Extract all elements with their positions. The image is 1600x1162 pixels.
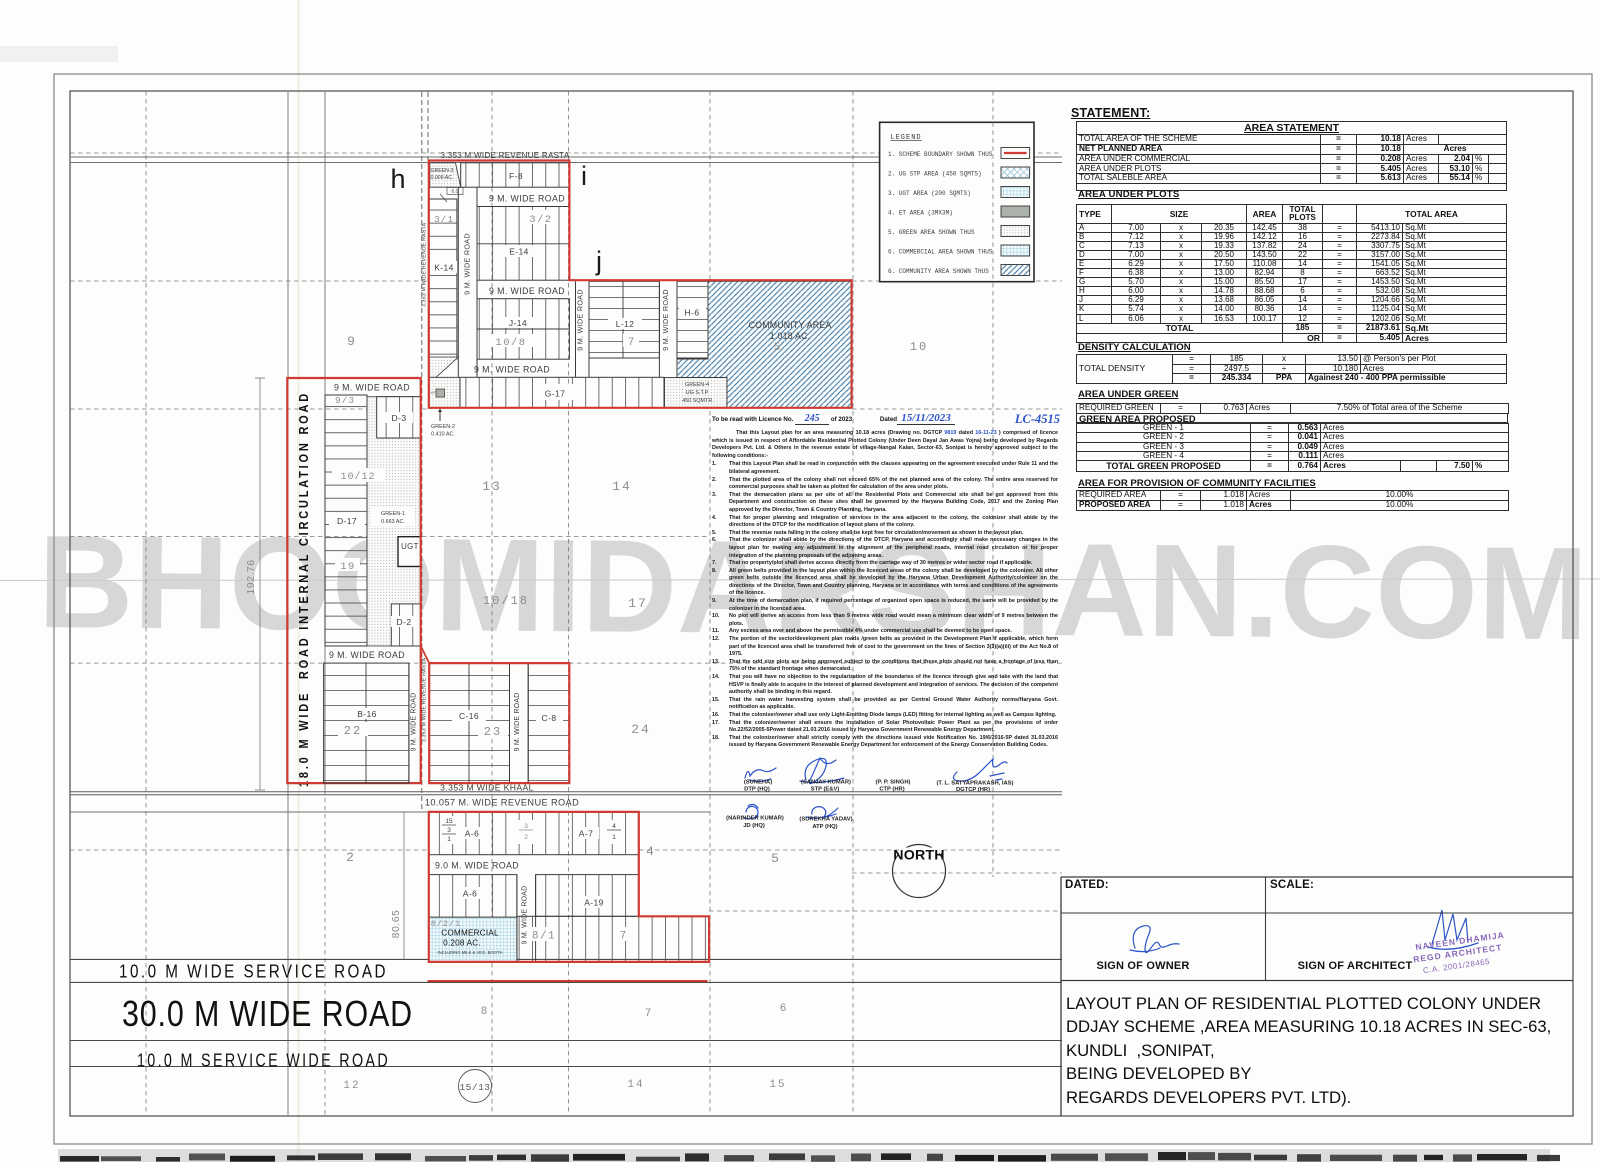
svg-text:6. COMMUNITY AREA SHOWN THUS: 6. COMMUNITY AREA SHOWN THUS	[888, 268, 989, 275]
svg-text:9 M. WIDE ROAD: 9 M. WIDE ROAD	[334, 383, 410, 393]
svg-text:450 SQMTR.: 450 SQMTR.	[682, 398, 713, 404]
svg-text:LEGEND: LEGEND	[890, 134, 921, 142]
svg-text:5: 5	[774, 342, 781, 354]
svg-text:C-16: C-16	[459, 711, 479, 721]
svg-text:C-8: C-8	[542, 713, 557, 723]
svg-text:1.018 AC.: 1.018 AC.	[770, 331, 810, 341]
svg-text:10.0 M WIDE SERVICE ROAD: 10.0 M WIDE SERVICE ROAD	[119, 961, 388, 982]
svg-text:D-2: D-2	[397, 617, 412, 627]
svg-text:CTP (HR): CTP (HR)	[879, 786, 904, 792]
svg-text:K-14: K-14	[434, 263, 454, 273]
svg-text:2: 2	[524, 834, 528, 841]
svg-text:3.353 M WIDE REVENUE RASTA: 3.353 M WIDE REVENUE RASTA	[440, 151, 569, 160]
svg-text:9 M. WIDE ROAD: 9 M. WIDE ROAD	[329, 650, 405, 660]
svg-text:19: 19	[340, 561, 356, 573]
svg-text:15: 15	[445, 818, 453, 825]
svg-text:(SUREKHA YADAV): (SUREKHA YADAV)	[799, 817, 852, 823]
svg-text:1. SCHEME BOUNDARY SHOWN THUS: 1. SCHEME BOUNDARY SHOWN THUS	[888, 151, 993, 158]
svg-text:3.353 M WIDE REVENUE RASTA: 3.353 M WIDE REVENUE RASTA	[421, 223, 427, 308]
svg-text:A-6: A-6	[463, 889, 477, 899]
svg-text:9/3: 9/3	[335, 395, 355, 406]
svg-text:9 M. WIDE ROAD: 9 M. WIDE ROAD	[489, 286, 565, 296]
svg-text:3: 3	[524, 823, 528, 830]
svg-text:17: 17	[628, 596, 648, 611]
svg-text:9 M. WIDE ROAD: 9 M. WIDE ROAD	[411, 693, 418, 752]
svg-text:9 M. WIDE ROAD: 9 M. WIDE ROAD	[661, 289, 670, 351]
svg-text:7: 7	[628, 337, 635, 349]
svg-text:9.0 M. WIDE ROAD: 9.0 M. WIDE ROAD	[435, 861, 519, 871]
svg-text:H-6: H-6	[685, 308, 700, 318]
svg-text:GREEN-3: GREEN-3	[430, 168, 453, 174]
svg-text:9 M. WIDE ROAD: 9 M. WIDE ROAD	[474, 365, 550, 375]
svg-text:7: 7	[645, 1008, 654, 1020]
svg-text:14: 14	[627, 1079, 644, 1091]
svg-text:9 M. WIDE ROAD: 9 M. WIDE ROAD	[463, 233, 472, 295]
svg-text:6: 6	[780, 1003, 789, 1015]
svg-text:A-6: A-6	[465, 829, 479, 839]
svg-text:J-14: J-14	[509, 318, 527, 328]
svg-text:A-7: A-7	[579, 829, 593, 839]
svg-text:A-19: A-19	[584, 898, 604, 908]
svg-text:ET: ET	[431, 391, 437, 395]
svg-text:G-17: G-17	[545, 389, 566, 399]
svg-text:GREEN-1: GREEN-1	[381, 511, 405, 517]
svg-text:8/1: 8/1	[532, 931, 556, 943]
svg-text:2: 2	[346, 850, 356, 865]
svg-text:18.0 M WIDE ROAD INTERNAL CIR: 18.0 M WIDE ROAD INTERNAL CIRCULATION RO…	[297, 391, 311, 787]
svg-text:i: i	[581, 161, 587, 191]
svg-text:30.0 M WIDE ROAD: 30.0 M WIDE ROAD	[122, 993, 413, 1034]
svg-text:10/18: 10/18	[483, 594, 529, 608]
svg-text:(SANJAY KUMAR): (SANJAY KUMAR)	[801, 780, 851, 786]
svg-text:6. COMMERCIAL AREA SHOWN THUS: 6. COMMERCIAL AREA SHOWN THUS	[888, 249, 993, 256]
svg-text:80.65: 80.65	[390, 910, 402, 939]
svg-text:3.353 M WIDE KHAAL: 3.353 M WIDE KHAAL	[440, 783, 534, 793]
svg-text:STP (E&V): STP (E&V)	[811, 786, 840, 792]
svg-text:0.208 AC.: 0.208 AC.	[443, 939, 481, 948]
svg-text:3.353 M WIDE REVENUE RASTA: 3.353 M WIDE REVENUE RASTA	[421, 658, 427, 743]
svg-text:13: 13	[482, 479, 502, 494]
svg-text:1: 1	[447, 836, 451, 843]
svg-text:9 M. WIDE ROAD: 9 M. WIDE ROAD	[489, 194, 565, 204]
svg-text:COMMUNITY AREA: COMMUNITY AREA	[749, 320, 832, 330]
svg-text:COMMERCIAL: COMMERCIAL	[441, 929, 499, 938]
svg-text:8/2/1: 8/2/1	[431, 919, 462, 929]
svg-text:3: 3	[447, 827, 451, 834]
svg-text:GREEN-2: GREEN-2	[431, 424, 455, 430]
svg-text:DGTCP (HR): DGTCP (HR)	[956, 787, 990, 793]
svg-text:ATP (HQ): ATP (HQ)	[812, 824, 837, 830]
svg-text:15/13: 15/13	[459, 1082, 490, 1093]
svg-text:GREEN-4: GREEN-4	[685, 382, 709, 388]
svg-text:DTP (HQ): DTP (HQ)	[744, 786, 770, 792]
svg-text:(SUNEHA): (SUNEHA)	[744, 780, 772, 786]
svg-text:9 M. WIDE ROAD: 9 M. WIDE ROAD	[514, 693, 521, 752]
svg-text:9 M. WIDE ROAD: 9 M. WIDE ROAD	[576, 289, 585, 351]
svg-text:4. ET AREA (3MX3M): 4. ET AREA (3MX3M)	[888, 210, 953, 217]
svg-text:7: 7	[620, 931, 627, 943]
svg-text:5. GREEN AREA SHOWN THUS: 5. GREEN AREA SHOWN THUS	[888, 229, 975, 236]
svg-text:0.663 AC.: 0.663 AC.	[381, 519, 405, 525]
svg-text:14: 14	[612, 479, 632, 494]
svg-text:1: 1	[612, 834, 616, 841]
svg-text:8: 8	[481, 1006, 490, 1018]
svg-text:D-3: D-3	[392, 413, 407, 423]
svg-text:0.009 AC.: 0.009 AC.	[431, 175, 454, 181]
svg-text:(T. L. SATYAPRAKASH, IAS): (T. L. SATYAPRAKASH, IAS)	[937, 781, 1014, 787]
svg-text:h: h	[390, 164, 405, 194]
svg-text:15: 15	[769, 1079, 786, 1091]
svg-text:UGT: UGT	[401, 542, 419, 551]
svg-text:192.76: 192.76	[245, 559, 257, 594]
svg-text:10/8: 10/8	[495, 337, 526, 349]
svg-text:UG S.T.P: UG S.T.P	[686, 390, 709, 396]
svg-text:3/1: 3/1	[434, 214, 454, 225]
svg-text:22: 22	[344, 724, 362, 738]
svg-text:4: 4	[646, 844, 656, 859]
svg-text:12: 12	[343, 1080, 360, 1092]
svg-text:E-14: E-14	[509, 247, 529, 257]
svg-text:10: 10	[910, 340, 928, 354]
svg-text:24: 24	[631, 722, 651, 737]
svg-text:23: 23	[484, 725, 502, 739]
svg-text:2. UG STP AREA (450 SQMTS): 2. UG STP AREA (450 SQMTS)	[888, 171, 982, 178]
svg-text:3. UGT AREA (200 SQMTS): 3. UGT AREA (200 SQMTS)	[888, 190, 971, 197]
svg-text:JD (HQ): JD (HQ)	[743, 823, 765, 829]
svg-text:D-17: D-17	[337, 516, 357, 526]
svg-text:F-8: F-8	[509, 171, 523, 181]
svg-text:6.0: 6.0	[452, 189, 459, 195]
svg-text:4: 4	[612, 823, 616, 830]
svg-text:10.0 M SERVICE WIDE ROAD: 10.0 M SERVICE WIDE ROAD	[137, 1050, 390, 1071]
svg-text:INCLUDING MILK & VEG. BOOTH: INCLUDING MILK & VEG. BOOTH	[437, 950, 502, 955]
svg-text:0.410 AC.: 0.410 AC.	[431, 432, 455, 438]
svg-text:3/2: 3/2	[529, 214, 552, 226]
svg-text:(P. P. SINGH): (P. P. SINGH)	[876, 780, 911, 786]
svg-text:NORTH: NORTH	[893, 848, 944, 864]
svg-text:9: 9	[347, 334, 357, 349]
svg-text:L-12: L-12	[616, 319, 635, 329]
svg-text:10/12: 10/12	[340, 471, 375, 483]
svg-text:5: 5	[771, 851, 781, 866]
svg-text:10.057 M. WIDE REVENUE ROAD: 10.057 M. WIDE REVENUE ROAD	[425, 798, 579, 808]
svg-text:(NARINDER KUMAR): (NARINDER KUMAR)	[726, 816, 784, 822]
svg-text:j: j	[595, 246, 602, 276]
svg-text:B-16: B-16	[357, 709, 377, 719]
